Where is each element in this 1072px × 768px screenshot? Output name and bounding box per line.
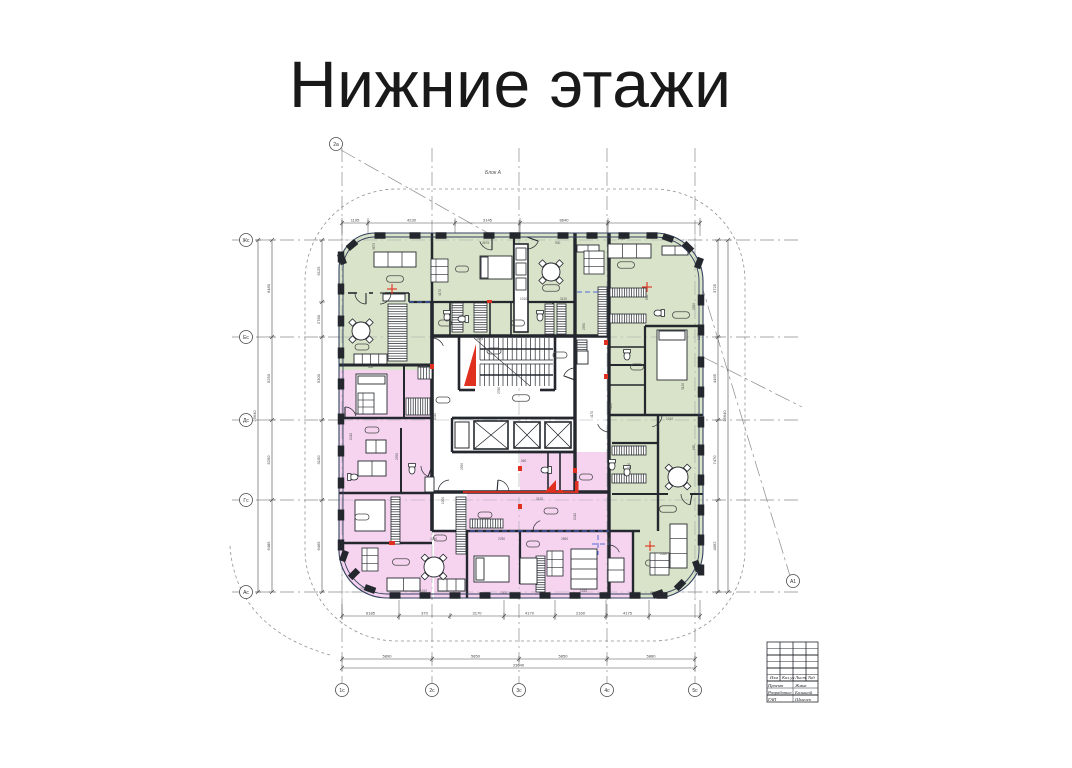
svg-text:5890: 5890 bbox=[383, 654, 393, 659]
svg-text:5250: 5250 bbox=[266, 373, 271, 383]
svg-text:5850: 5850 bbox=[471, 654, 481, 659]
svg-text:4495: 4495 bbox=[712, 373, 717, 383]
svg-text:3675: 3675 bbox=[372, 243, 376, 250]
svg-text:Нижние этажи: Нижние этажи bbox=[289, 47, 731, 121]
svg-text:2780: 2780 bbox=[498, 537, 505, 541]
svg-text:1195: 1195 bbox=[351, 218, 360, 223]
svg-text:5300: 5300 bbox=[316, 373, 321, 383]
svg-text:2780: 2780 bbox=[497, 387, 501, 394]
svg-text:3120: 3120 bbox=[681, 383, 685, 390]
svg-text:4170: 4170 bbox=[590, 411, 594, 418]
svg-text:2550: 2550 bbox=[395, 453, 399, 460]
svg-text:4230: 4230 bbox=[407, 218, 417, 223]
svg-text:2780: 2780 bbox=[420, 365, 427, 369]
svg-text:Шмелев: Шмелев bbox=[794, 697, 811, 702]
svg-text:6125: 6125 bbox=[316, 266, 321, 276]
svg-text:3725: 3725 bbox=[712, 283, 717, 293]
svg-text:1010: 1010 bbox=[580, 589, 587, 593]
svg-text:1010: 1010 bbox=[433, 413, 437, 420]
svg-text:1010: 1010 bbox=[573, 513, 577, 520]
svg-text:3170: 3170 bbox=[473, 611, 483, 616]
svg-text:Ас: Ас bbox=[243, 590, 249, 596]
svg-text:Изм: Изм bbox=[769, 675, 778, 680]
svg-text:Лист: Лист bbox=[794, 675, 806, 680]
svg-text:660: 660 bbox=[645, 294, 649, 300]
svg-text:4c: 4c bbox=[604, 688, 610, 694]
svg-text:2780: 2780 bbox=[430, 537, 437, 541]
svg-text:3120: 3120 bbox=[536, 497, 543, 501]
svg-text:7470: 7470 bbox=[712, 455, 717, 465]
svg-text:3145: 3145 bbox=[483, 218, 493, 223]
svg-text:4175: 4175 bbox=[623, 611, 633, 616]
svg-text:1c: 1c bbox=[339, 688, 345, 694]
svg-text:25640: 25640 bbox=[722, 410, 727, 422]
svg-text:2550: 2550 bbox=[582, 323, 586, 330]
svg-text:Гс: Гс bbox=[243, 498, 249, 504]
svg-text:Блок А: Блок А bbox=[485, 170, 502, 176]
svg-text:1200: 1200 bbox=[441, 497, 445, 504]
svg-text:Разработал: Разработал bbox=[767, 690, 792, 695]
svg-text:Ес: Ес bbox=[243, 335, 249, 341]
svg-text:3675: 3675 bbox=[476, 337, 483, 341]
svg-text:4170: 4170 bbox=[438, 289, 442, 296]
svg-text:Жмив: Жмив bbox=[794, 683, 806, 688]
svg-text:1010: 1010 bbox=[349, 433, 353, 440]
svg-text:6485: 6485 bbox=[266, 541, 271, 551]
svg-text:23640: 23640 bbox=[513, 663, 525, 668]
svg-text:660: 660 bbox=[368, 365, 374, 369]
svg-text:5250: 5250 bbox=[266, 455, 271, 465]
svg-text:2780: 2780 bbox=[316, 314, 321, 324]
svg-text:А1: А1 bbox=[790, 579, 796, 585]
svg-text:Жс: Жс bbox=[242, 238, 250, 244]
svg-text:6465: 6465 bbox=[316, 541, 321, 551]
svg-text:660: 660 bbox=[521, 459, 527, 463]
svg-text:ГАП: ГАП bbox=[767, 697, 777, 702]
svg-text:4170: 4170 bbox=[525, 611, 535, 616]
svg-text:2а: 2а bbox=[333, 142, 339, 148]
svg-text:900: 900 bbox=[555, 241, 561, 245]
svg-text:6185: 6185 bbox=[366, 611, 376, 616]
svg-text:5850: 5850 bbox=[559, 654, 569, 659]
svg-text:Проект: Проект bbox=[767, 683, 784, 688]
svg-text:Дс: Дс bbox=[243, 418, 249, 424]
svg-text:5880: 5880 bbox=[647, 654, 657, 659]
svg-text:3150: 3150 bbox=[316, 455, 321, 465]
svg-text:5c: 5c bbox=[692, 688, 698, 694]
svg-text:370: 370 bbox=[421, 611, 428, 616]
svg-text:25640: 25640 bbox=[252, 410, 257, 422]
svg-text:3c: 3c bbox=[516, 688, 522, 694]
svg-text:3120: 3120 bbox=[560, 297, 567, 301]
svg-text:Большой: Большой bbox=[794, 690, 813, 695]
svg-text:2550: 2550 bbox=[660, 552, 667, 556]
svg-text:2c: 2c bbox=[429, 688, 435, 694]
svg-text:2550: 2550 bbox=[460, 463, 464, 470]
svg-text:6480: 6480 bbox=[266, 283, 271, 293]
svg-text:1010: 1010 bbox=[520, 297, 527, 301]
svg-text:2550: 2550 bbox=[561, 537, 568, 541]
svg-text:2160: 2160 bbox=[576, 611, 586, 616]
svg-text:2550: 2550 bbox=[692, 303, 696, 310]
svg-text:4062: 4062 bbox=[712, 541, 717, 551]
svg-text:3675: 3675 bbox=[482, 241, 489, 245]
svg-text:8640: 8640 bbox=[560, 218, 570, 223]
svg-text:№д: №д bbox=[807, 675, 815, 680]
svg-text:Кол.уч: Кол.уч bbox=[781, 675, 795, 680]
svg-text:660: 660 bbox=[692, 444, 696, 450]
svg-text:1010: 1010 bbox=[666, 417, 673, 421]
svg-text:3120: 3120 bbox=[627, 463, 631, 470]
svg-text:3120: 3120 bbox=[609, 403, 613, 410]
